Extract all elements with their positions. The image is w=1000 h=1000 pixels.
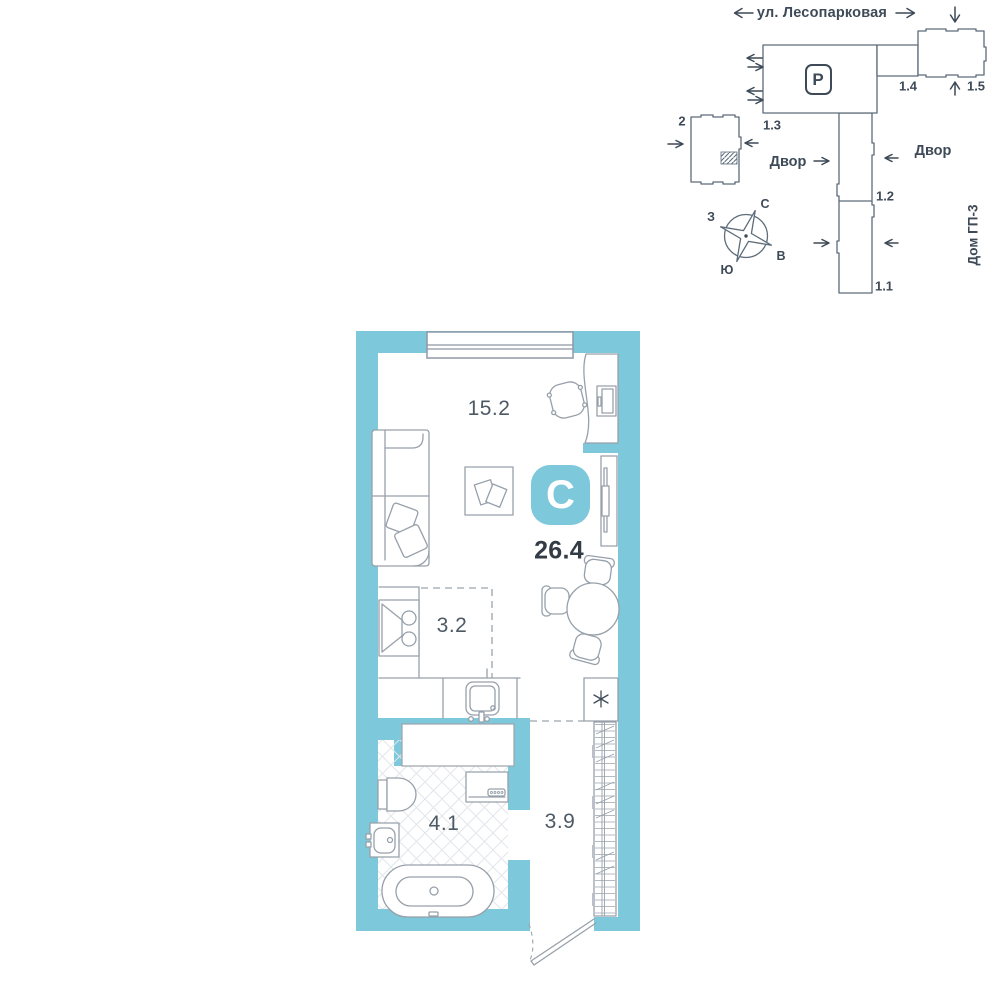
shaft-niche — [402, 724, 514, 766]
floorplan-page: ул. Лесопарковая P 2 1.3 1.4 1.5 1.2 1.1… — [0, 0, 1000, 1000]
bathroom-area-label: 4.1 — [429, 812, 460, 836]
street-arrow-left-icon — [735, 9, 754, 18]
dining-chair — [569, 632, 605, 666]
living-room-area-label: 15.2 — [468, 397, 511, 421]
studio-type-letter: С — [546, 475, 575, 515]
hall-area-label: 3.9 — [545, 810, 576, 834]
fridge-space — [584, 678, 618, 721]
wardrobe-handle — [592, 893, 595, 906]
toilet — [378, 778, 416, 811]
dining-table — [542, 555, 619, 665]
building-2-label: 2 — [678, 114, 685, 129]
compass-north-label: С — [760, 197, 769, 211]
sofa — [372, 430, 429, 566]
building-tower-11-12 — [837, 113, 874, 293]
bathroom-sink — [366, 823, 399, 857]
street-label: ул. Лесопарковая — [757, 5, 887, 21]
compass-south-label: Ю — [721, 263, 734, 277]
house-gp3-label: Дом ГП-3 — [966, 205, 981, 266]
plan-linework — [0, 0, 1000, 1000]
building-14-label: 1.4 — [899, 79, 917, 94]
street-arrow-right-icon — [896, 9, 915, 18]
window — [427, 332, 573, 358]
washing-machine — [466, 772, 508, 802]
compass-west-label: З — [707, 210, 715, 224]
building-11-label: 1.1 — [875, 279, 893, 294]
stove — [379, 600, 419, 656]
highlighted-unit-marker — [721, 152, 737, 164]
building-2 — [691, 115, 741, 184]
compass-east-label: В — [776, 249, 785, 263]
wardrobe — [592, 722, 616, 916]
kitchen-sink — [466, 669, 499, 722]
wardrobe-handle — [592, 796, 595, 809]
building-14 — [877, 45, 918, 76]
building-13-label: 1.3 — [763, 118, 781, 133]
tv-unit — [601, 456, 617, 546]
yard-label-right: Двор — [915, 143, 952, 159]
compass-rose-icon — [721, 211, 772, 262]
kitchen-area-label: 3.2 — [437, 614, 468, 638]
studio-type-badge: С — [531, 465, 590, 525]
entrance-door — [529, 919, 596, 965]
wardrobe-handle — [592, 845, 595, 858]
dining-chair — [542, 586, 569, 616]
floor-plan-art — [366, 332, 619, 965]
total-area-label: 26.4 — [534, 537, 584, 566]
dining-chair — [581, 555, 614, 586]
parking-sign-label: P — [812, 70, 823, 90]
coffee-table — [465, 467, 513, 515]
building-15-label: 1.5 — [967, 79, 985, 94]
office-chair — [545, 379, 588, 421]
laptop-icon — [597, 386, 616, 416]
wardrobe-handle — [592, 745, 595, 758]
bathtub — [382, 865, 494, 917]
yard-label-left: Двор — [770, 154, 807, 170]
building-12-label: 1.2 — [876, 189, 894, 204]
building-15 — [918, 29, 986, 77]
